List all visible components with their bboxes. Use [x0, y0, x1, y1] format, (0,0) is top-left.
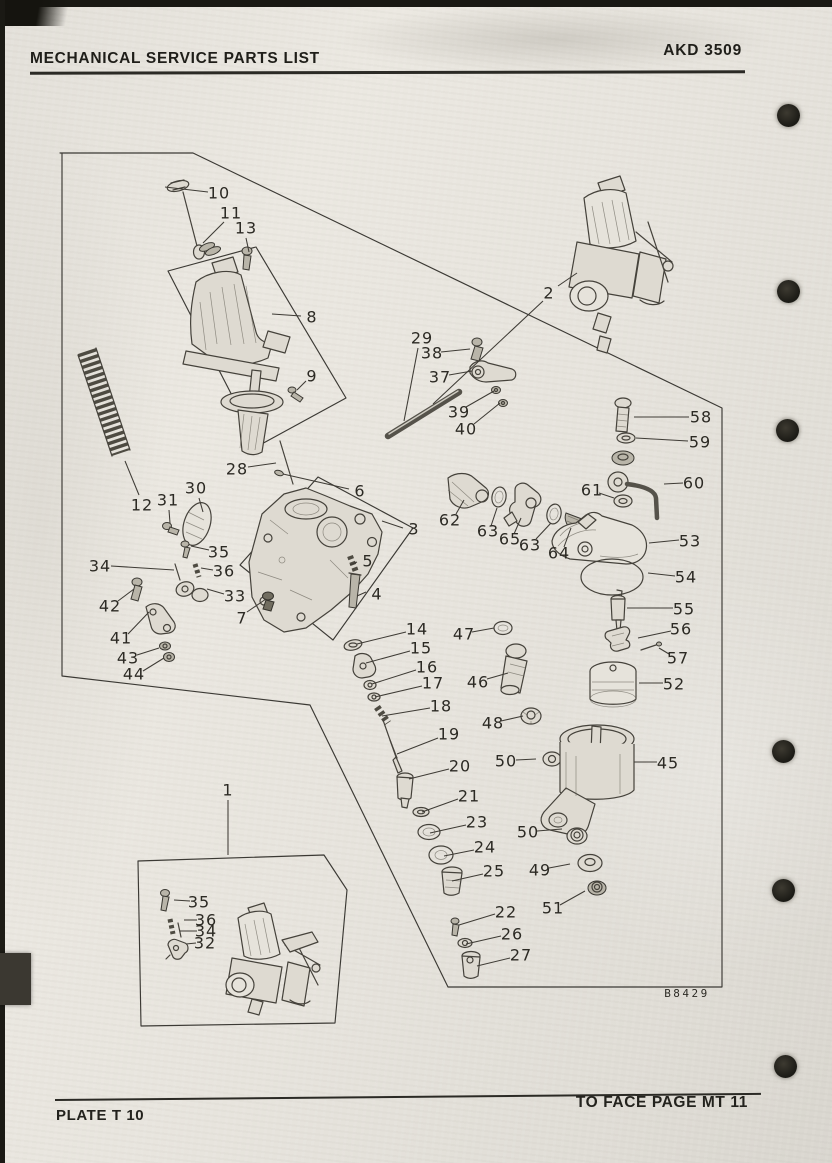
- callout-21: 21: [458, 787, 480, 806]
- leader-line-59: [636, 438, 688, 441]
- leader-line-35: [191, 546, 209, 550]
- leader-line-28: [248, 463, 276, 467]
- leader-line-15: [366, 651, 410, 663]
- callout-56: 56: [670, 620, 692, 639]
- callout-49: 49: [529, 861, 551, 880]
- callout-60: 60: [683, 474, 705, 493]
- leader-line-34: [111, 566, 174, 570]
- part-screw-35: [181, 541, 190, 558]
- part-screw-13: [242, 247, 252, 270]
- part-nut-43: [160, 642, 171, 650]
- leader-line-29: [404, 348, 418, 421]
- punch-hole: [772, 740, 795, 763]
- part-bolt-38: [471, 338, 483, 361]
- part-rear-carburettor-1: [226, 903, 320, 1015]
- callout-33: 33: [224, 587, 246, 606]
- leader-line-37: [449, 371, 472, 375]
- leader-line-20: [409, 769, 449, 779]
- plate-number: PLATE T 10: [56, 1107, 144, 1124]
- leader-line-12: [125, 461, 139, 495]
- callout-19: 19: [438, 725, 460, 744]
- callout-28: 28: [226, 460, 248, 479]
- leader-line-50: [516, 759, 536, 760]
- part-hinge-fork-56: [605, 627, 630, 651]
- part-hinge-pin-57: [641, 642, 662, 650]
- part-washer-48: [521, 708, 541, 724]
- callout-2: 2: [543, 284, 554, 303]
- callout-63: 63: [477, 522, 499, 541]
- callout-53: 53: [679, 532, 701, 551]
- callout-57: 57: [667, 649, 689, 668]
- punch-hole: [776, 419, 799, 442]
- leader-line-31: [169, 510, 170, 523]
- callout-31: 31: [157, 491, 179, 510]
- part-washer-49: [578, 855, 602, 872]
- leader-line-44: [143, 658, 164, 671]
- callout-4: 4: [371, 585, 382, 604]
- part-connector-62: [448, 474, 488, 509]
- facing-page-reference: TO FACE PAGE MT 11: [576, 1094, 748, 1112]
- punch-hole: [774, 1055, 797, 1078]
- callout-8: 8: [306, 308, 317, 327]
- leader-line-3: [382, 521, 403, 528]
- leader-line-47: [472, 628, 494, 632]
- part-seal-63b: [545, 503, 563, 525]
- callout-37: 37: [429, 368, 451, 387]
- part-screw-22: [451, 918, 459, 936]
- leader-lines-extra: [433, 301, 543, 404]
- callout-1: 1: [222, 781, 233, 800]
- part-grommet-50b: [567, 828, 587, 844]
- leader-line-21: [422, 799, 458, 812]
- page-footer: PLATE T 10 TO FACE PAGE MT 11: [0, 1090, 832, 1140]
- part-seal-63a: [490, 486, 507, 508]
- leader-line-38: [441, 349, 470, 352]
- callout-23: 23: [466, 813, 488, 832]
- callout-25: 25: [483, 862, 505, 881]
- punch-hole: [777, 104, 800, 127]
- leader-line-49: [549, 864, 570, 868]
- leader-line-9: [297, 381, 306, 390]
- part-nut-51: [588, 881, 606, 895]
- part-union-15: [353, 654, 376, 678]
- leader-line-33: [207, 589, 224, 594]
- callout-46: 46: [467, 673, 489, 692]
- part-banjo-bolt-58: [615, 398, 631, 432]
- callout-59: 59: [689, 433, 711, 452]
- part-washer-47: [494, 622, 512, 635]
- part-screw-31: [163, 523, 180, 536]
- punch-hole: [772, 879, 795, 902]
- leader-line-54: [648, 573, 675, 576]
- callout-26: 26: [501, 925, 523, 944]
- callout-15: 15: [410, 639, 432, 658]
- punch-hole: [777, 280, 800, 303]
- leader-line-extra: [433, 301, 543, 404]
- callout-36: 36: [213, 562, 235, 581]
- callout-50: 50: [517, 823, 539, 842]
- part-gland-25: [442, 867, 462, 895]
- callout-41: 41: [110, 629, 132, 648]
- leader-line-40: [474, 403, 500, 424]
- part-screw-35b: [161, 890, 170, 912]
- callout-14: 14: [406, 620, 428, 639]
- part-washer-59b: [612, 451, 634, 465]
- callout-50: 50: [495, 752, 517, 771]
- part-washer-16: [364, 681, 376, 690]
- leader-line-39: [466, 391, 494, 407]
- leader-line-6: [283, 474, 349, 489]
- callout-51: 51: [542, 899, 564, 918]
- callout-62: 62: [439, 511, 461, 530]
- leader-line-11: [203, 222, 224, 243]
- callout-24: 24: [474, 838, 496, 857]
- part-piston-8: [221, 370, 283, 455]
- callout-12: 12: [131, 496, 153, 515]
- callout-9: 9: [306, 367, 317, 386]
- callout-58: 58: [690, 408, 712, 427]
- part-gasket-54: [581, 559, 643, 595]
- part-clamp-33: [174, 580, 208, 602]
- callout-18: 18: [430, 697, 452, 716]
- callout-22: 22: [495, 903, 517, 922]
- part-washer-14: [343, 638, 363, 652]
- part-washer-59: [617, 433, 635, 443]
- callout-30: 30: [185, 479, 207, 498]
- part-float-chamber-45: [541, 725, 634, 835]
- leader-line-14: [357, 632, 406, 644]
- scanned-page: MECHANICAL SERVICE PARTS LIST AKD 3509: [0, 0, 832, 1163]
- callout-63: 63: [519, 536, 541, 555]
- callout-34: 34: [89, 557, 111, 576]
- part-elbow-65: [504, 483, 541, 526]
- part-union-27: [462, 952, 480, 979]
- part-spring-36b: [170, 919, 173, 934]
- callout-61: 61: [581, 481, 603, 500]
- part-clamp-32: [166, 939, 188, 959]
- part-banjo-union-60: [608, 472, 657, 518]
- callout-52: 52: [663, 675, 685, 694]
- part-needle-28: [280, 441, 293, 484]
- part-needle-valve-55: [611, 590, 625, 631]
- callout-54: 54: [675, 568, 697, 587]
- leader-line-43: [137, 648, 159, 655]
- callout-17: 17: [422, 674, 444, 693]
- part-lever-37: [470, 361, 516, 382]
- callout-55: 55: [673, 600, 695, 619]
- leader-line-53: [649, 540, 679, 543]
- leader-line-56: [638, 631, 671, 638]
- part-washer-61: [614, 495, 632, 507]
- leader-line-22: [459, 914, 495, 925]
- part-nut-44: [164, 653, 175, 662]
- part-washer-50a: [543, 752, 561, 766]
- callout-47: 47: [453, 625, 475, 644]
- figure-code: B8429: [664, 987, 710, 1000]
- callout-48: 48: [482, 714, 504, 733]
- part-pin-34: [175, 564, 180, 580]
- part-suction-chamber-8: [183, 257, 290, 381]
- callout-20: 20: [449, 757, 471, 776]
- exploded-parts-diagram: 1234567891011121314151617181920212223242…: [0, 0, 832, 1163]
- callout-35: 35: [188, 893, 210, 912]
- callout-40: 40: [455, 420, 477, 439]
- part-washer-17: [368, 693, 380, 701]
- callout-45: 45: [657, 754, 679, 773]
- leader-line-48: [501, 716, 523, 721]
- callout-36: 36: [195, 911, 217, 930]
- part-carburettor-assembly-2: [569, 176, 673, 353]
- part-nut-39: [492, 387, 501, 394]
- callout-10: 10: [208, 184, 230, 203]
- leader-line-36: [201, 568, 213, 570]
- callout-27: 27: [510, 946, 532, 965]
- part-washer-21: [413, 808, 429, 817]
- leader-line-24: [444, 850, 474, 856]
- leader-line-18: [382, 708, 430, 716]
- callout-38: 38: [421, 344, 443, 363]
- callout-13: 13: [235, 219, 257, 238]
- callout-5: 5: [362, 552, 373, 571]
- leader-line-26: [466, 936, 501, 944]
- part-spring-12: [78, 348, 130, 456]
- leader-line-60: [664, 483, 683, 484]
- leader-line-19: [397, 738, 438, 754]
- part-screw-9: [288, 387, 303, 402]
- part-lever-41: [146, 604, 175, 634]
- part-union-bolt-46: [501, 644, 527, 695]
- callout-3: 3: [408, 520, 419, 539]
- callout-44: 44: [123, 665, 145, 684]
- callout-42: 42: [99, 597, 121, 616]
- part-pin-34b: [178, 923, 181, 937]
- callout-layer: 1234567891011121314151617181920212223242…: [89, 184, 712, 967]
- part-float-52: [590, 662, 636, 707]
- callout-35: 35: [208, 543, 230, 562]
- callout-64: 64: [548, 544, 570, 563]
- leader-line-16: [372, 670, 416, 684]
- part-jet-19: [383, 720, 402, 773]
- callout-6: 6: [354, 482, 365, 501]
- callout-7: 7: [236, 609, 247, 628]
- callout-65: 65: [499, 530, 521, 549]
- part-spring-36: [195, 564, 199, 577]
- part-piston-lift-pin-6: [274, 469, 284, 477]
- leader-line-27: [477, 958, 510, 966]
- leader-line-17: [375, 686, 422, 697]
